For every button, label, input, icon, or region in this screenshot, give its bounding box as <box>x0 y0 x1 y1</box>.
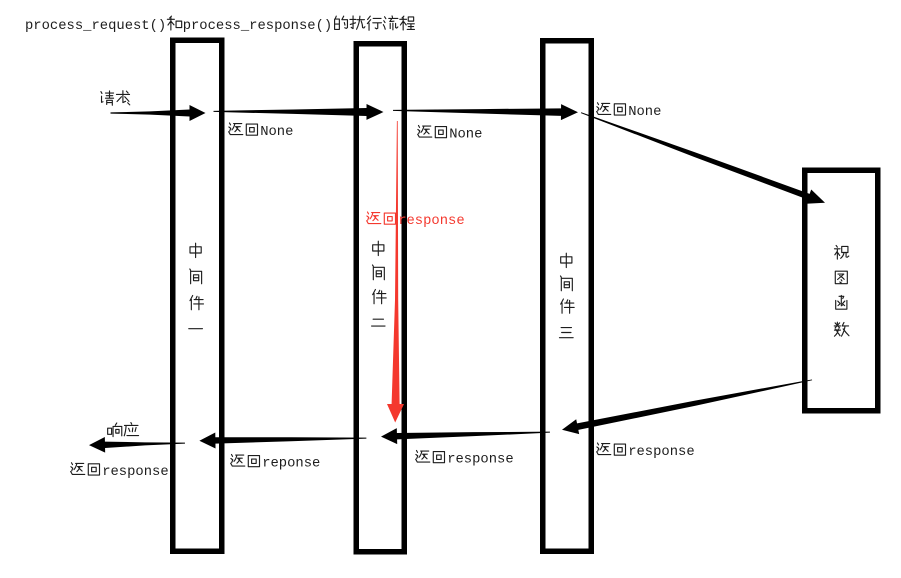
svg-text:reponse: reponse <box>262 456 320 472</box>
svg-text:process_response(): process_response() <box>183 18 333 34</box>
svg-text:None: None <box>628 104 661 120</box>
svg-text:response: response <box>398 213 464 229</box>
svg-text:None: None <box>449 127 482 143</box>
svg-text:response: response <box>447 452 513 468</box>
svg-text:response: response <box>628 444 694 460</box>
svg-text:response: response <box>102 464 168 480</box>
svg-text:None: None <box>260 124 293 140</box>
svg-text:process_request(): process_request() <box>25 18 166 34</box>
